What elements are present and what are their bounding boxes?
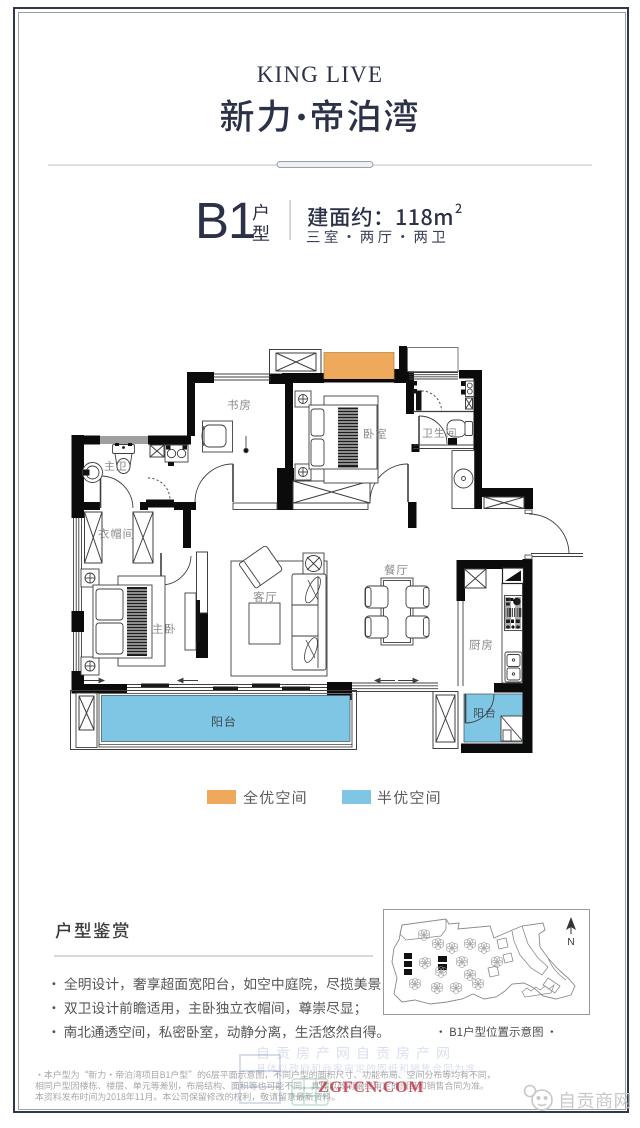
svg-text:N: N [567,937,574,948]
svg-text:B: B [195,192,229,249]
svg-text:ZGFCN.COM: ZGFCN.COM [318,1079,424,1096]
svg-text:KING LIVE: KING LIVE [257,62,383,87]
svg-text:1: 1 [228,192,256,249]
